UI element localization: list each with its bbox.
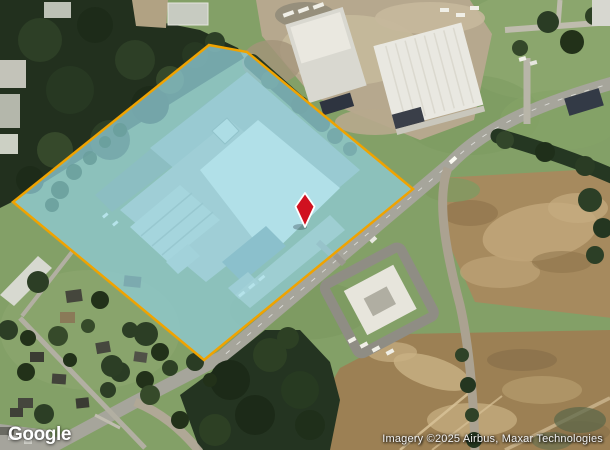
google-logo[interactable]: Google [8,424,71,446]
imagery-attribution: Imagery ©2025 Airbus, Maxar Technologies [382,433,603,445]
satellite-imagery [0,0,610,450]
map-canvas[interactable]: Google Imagery ©2025 Airbus, Maxar Techn… [0,0,610,450]
